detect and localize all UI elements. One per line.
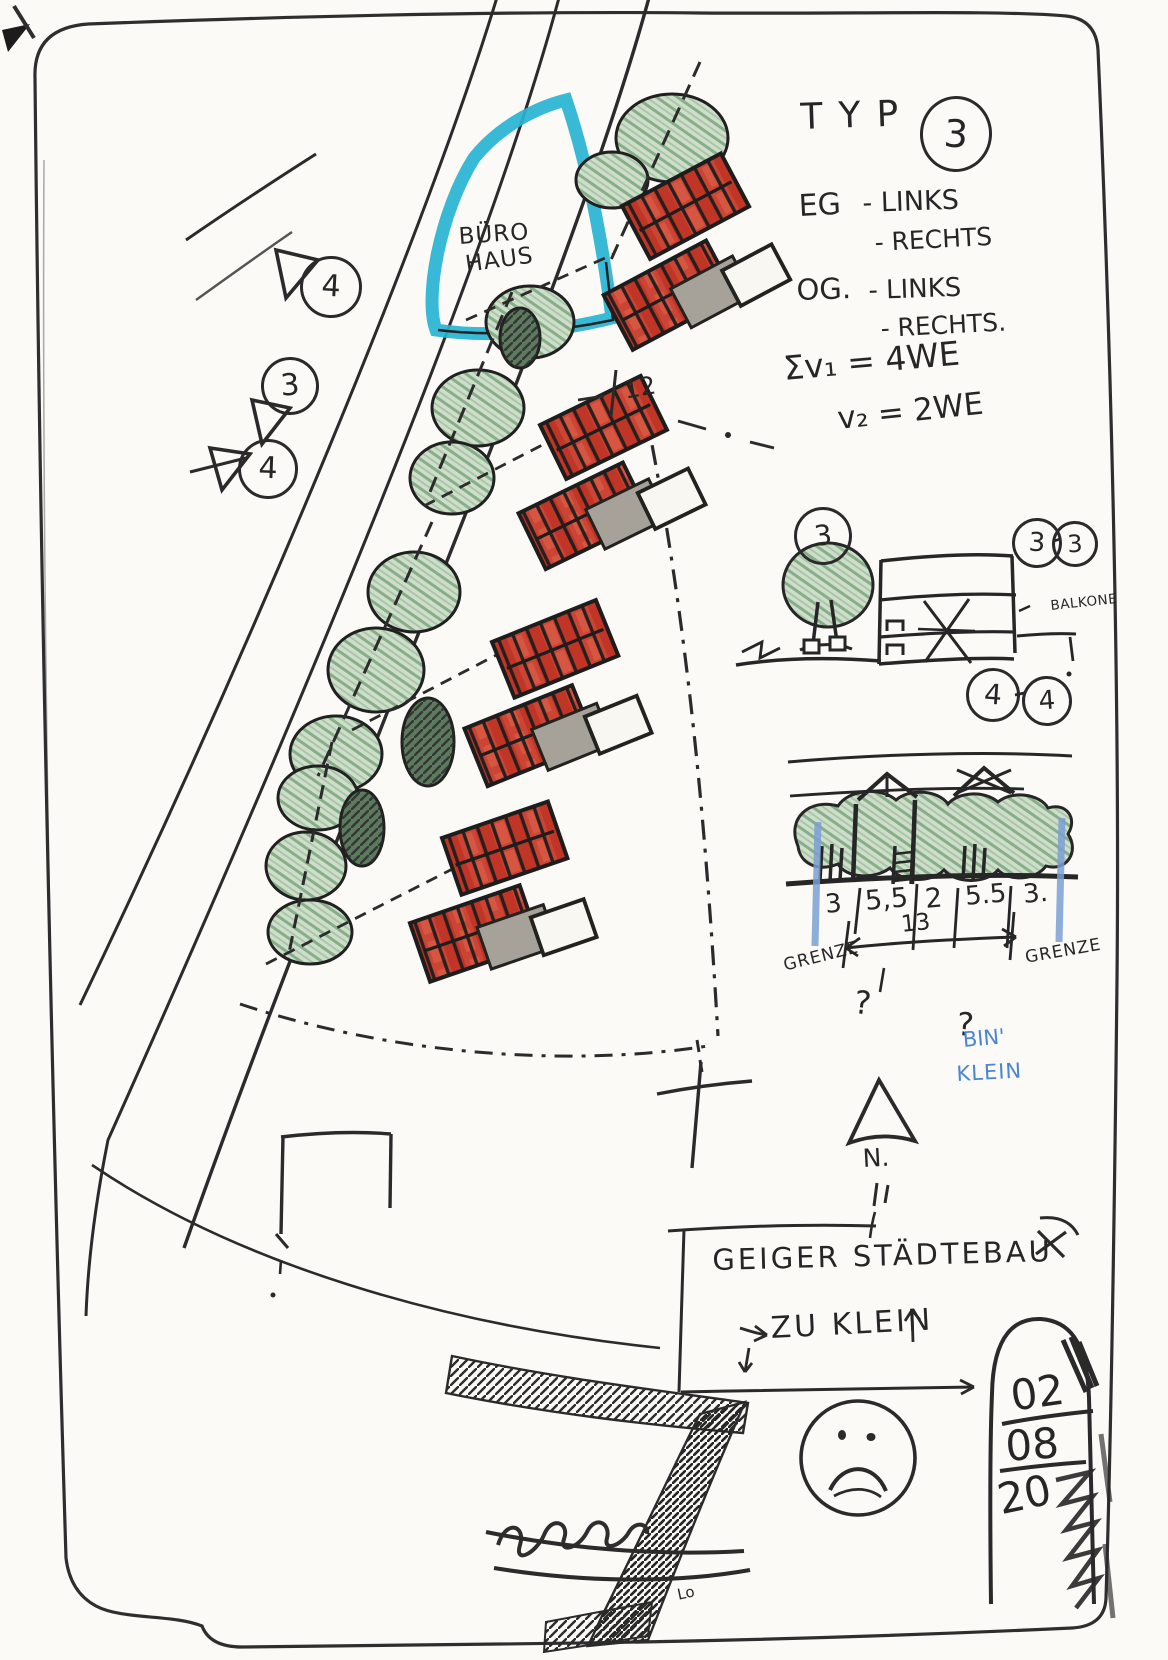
date-20: 20: [994, 1469, 1055, 1521]
og-links: - LINKS: [868, 275, 962, 304]
dark-sketch: [446, 1356, 750, 1652]
note-line1: GEIGER STÄDTEBAU: [712, 1237, 1053, 1275]
eg-label: EG: [798, 190, 842, 222]
dim-3-right: 3.: [1022, 880, 1049, 908]
tree: [368, 552, 460, 632]
note-line2: ZU KLEIN: [770, 1305, 934, 1343]
eg-links: - LINKS: [862, 187, 959, 217]
date-08: 08: [1004, 1422, 1060, 1468]
open-rect: [281, 1133, 391, 1234]
tree: [268, 900, 352, 964]
date-02: 02: [1008, 1369, 1067, 1418]
house-cluster: [387, 801, 597, 993]
blue-note-line1: BIN': [962, 1026, 1006, 1051]
sketch-canvas: [0, 0, 1168, 1660]
lo-mark: Lo: [676, 1584, 696, 1602]
house-cluster: [438, 599, 651, 797]
dim-55-right: 5.5: [964, 880, 1007, 910]
boundary-line-blue: [815, 822, 818, 946]
eye: [838, 1430, 846, 1440]
og-label: OG.: [796, 274, 852, 305]
frown-mouth: [830, 1469, 886, 1491]
north-label: N.: [862, 1145, 890, 1171]
plan-dim-12: 12: [622, 372, 658, 402]
dimension-line: [846, 937, 1016, 948]
dim-total-13: 13: [900, 911, 932, 937]
blue-note-line2: KLEIN: [956, 1061, 1023, 1085]
question-mark-left: ?: [853, 986, 873, 1020]
hedge: [795, 791, 1073, 880]
typ-label: TYP: [800, 96, 915, 136]
tree: [432, 370, 524, 446]
sketch-page: TYP 3 EG - LINKS - RECHTS OG. - LINKS - …: [0, 0, 1168, 1660]
sad-face: [801, 1401, 915, 1515]
dim-3-left: 3: [824, 891, 843, 918]
tree: [410, 442, 494, 514]
dim-55-left: 5,5: [864, 884, 909, 915]
tree: [266, 832, 346, 900]
eye: [867, 1433, 876, 1441]
boundary-line-blue: [1059, 818, 1062, 942]
eg-rechts: - RECHTS: [874, 224, 993, 255]
typ-number: 3: [943, 114, 970, 154]
